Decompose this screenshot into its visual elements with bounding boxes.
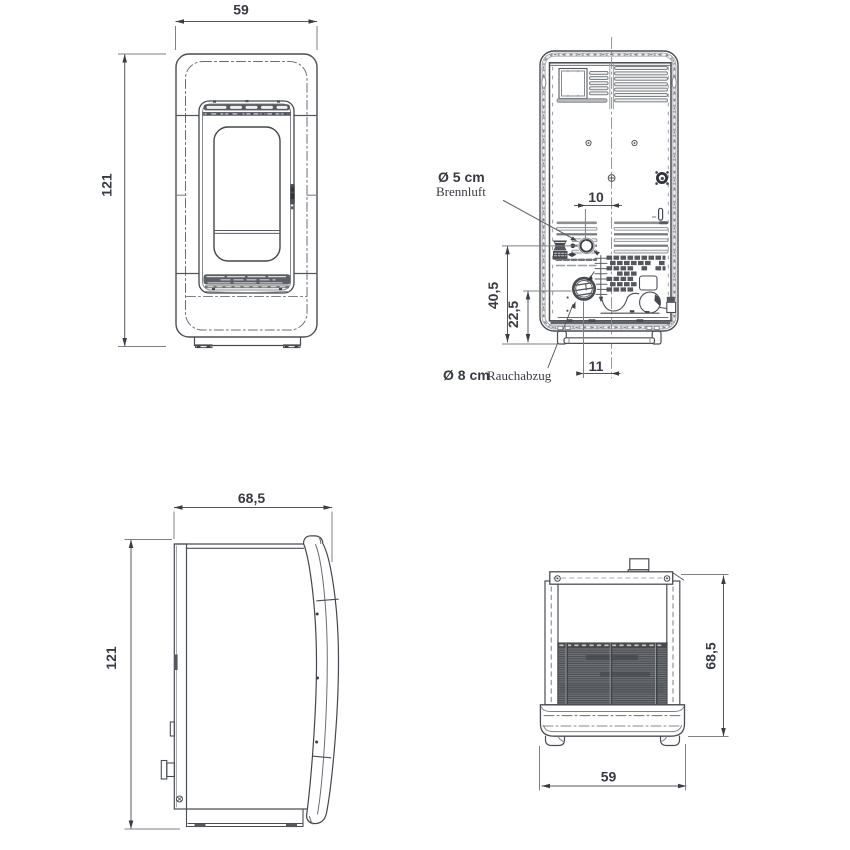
svg-text:59: 59 xyxy=(233,2,249,18)
svg-text:68,5: 68,5 xyxy=(703,642,719,669)
svg-text:40,5: 40,5 xyxy=(485,282,501,309)
svg-text:Ø 8 cm: Ø 8 cm xyxy=(443,367,490,383)
svg-text:22,5: 22,5 xyxy=(505,301,521,328)
svg-text:10: 10 xyxy=(588,189,604,205)
svg-text:59: 59 xyxy=(601,769,617,785)
svg-text:121: 121 xyxy=(99,173,115,197)
svg-text:11: 11 xyxy=(589,358,604,374)
svg-text:Ø 5 cm: Ø 5 cm xyxy=(438,169,485,185)
svg-text:68,5: 68,5 xyxy=(238,490,265,506)
svg-text:121: 121 xyxy=(103,646,119,670)
svg-text:Rauchabzug: Rauchabzug xyxy=(487,368,552,383)
svg-text:Brennluft: Brennluft xyxy=(436,184,486,199)
